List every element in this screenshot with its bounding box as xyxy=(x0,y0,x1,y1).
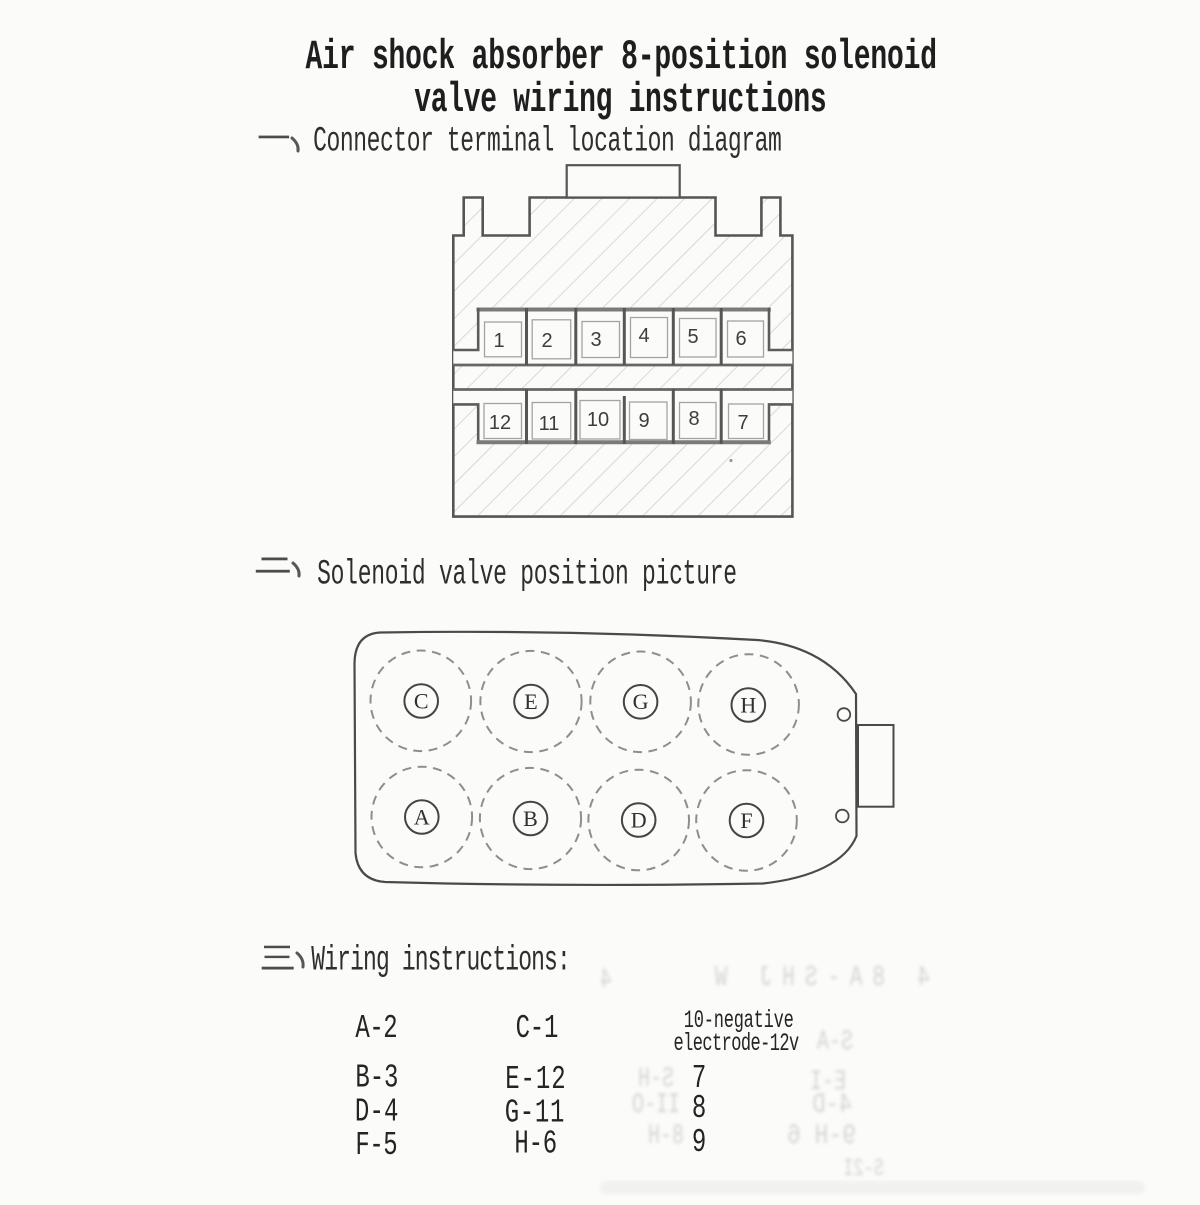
svg-text:6: 6 xyxy=(735,328,746,350)
svg-text:1: 1 xyxy=(493,330,504,352)
svg-text:B-3: B-3 xyxy=(355,1059,398,1097)
svg-text:9: 9 xyxy=(638,410,649,432)
svg-text:A: A xyxy=(414,804,430,829)
svg-text:2: 2 xyxy=(541,330,552,352)
svg-text:4: 4 xyxy=(600,965,612,996)
svg-text:Solenoid valve position pictur: Solenoid valve position picture xyxy=(317,555,737,595)
svg-text:3: 3 xyxy=(590,329,601,351)
svg-text:E-12: E-12 xyxy=(505,1060,565,1098)
svg-text:7: 7 xyxy=(737,412,748,434)
svg-text:C: C xyxy=(414,688,429,713)
svg-text:4-D: 4-D xyxy=(812,1089,852,1121)
svg-text:D: D xyxy=(631,807,647,832)
svg-text:H-6: H-6 xyxy=(514,1125,557,1163)
svg-text:electrode-12v: electrode-12v xyxy=(674,1030,800,1058)
svg-text:F-5: F-5 xyxy=(355,1126,397,1164)
svg-text:C-1: C-1 xyxy=(516,1009,559,1047)
svg-text:S-A: S-A xyxy=(817,1027,853,1058)
svg-text:11: 11 xyxy=(539,413,560,435)
svg-text:H: H xyxy=(740,692,756,717)
svg-text:Wiring instructions:: Wiring instructions: xyxy=(311,941,571,981)
svg-text:Connector terminal location di: Connector terminal location diagram xyxy=(313,122,782,162)
svg-text:F: F xyxy=(740,808,752,833)
svg-text:S-2I: S-2I xyxy=(843,1157,884,1183)
svg-text:8: 8 xyxy=(688,408,699,430)
svg-text:E: E xyxy=(524,689,537,714)
svg-text:5: 5 xyxy=(687,326,698,348)
svg-text:12: 12 xyxy=(489,412,511,434)
svg-text:A-2: A-2 xyxy=(355,1009,397,1047)
svg-text:D-4: D-4 xyxy=(355,1093,399,1131)
svg-text:valve wiring instructions: valve wiring instructions xyxy=(414,76,826,124)
svg-text:8: 8 xyxy=(692,1089,706,1127)
svg-text:9: 9 xyxy=(692,1123,706,1161)
svg-text:II-O: II-O xyxy=(632,1090,680,1121)
svg-text:8-H: 8-H xyxy=(648,1121,684,1152)
svg-text:B: B xyxy=(523,806,538,831)
svg-text:G: G xyxy=(633,689,649,714)
svg-text:10: 10 xyxy=(587,409,609,431)
svg-text:Air shock absorber 8-position: Air shock absorber 8-position solenoid xyxy=(306,33,938,81)
svg-text:4: 4 xyxy=(638,325,649,347)
svg-text:9-H 6: 9-H 6 xyxy=(787,1120,856,1152)
